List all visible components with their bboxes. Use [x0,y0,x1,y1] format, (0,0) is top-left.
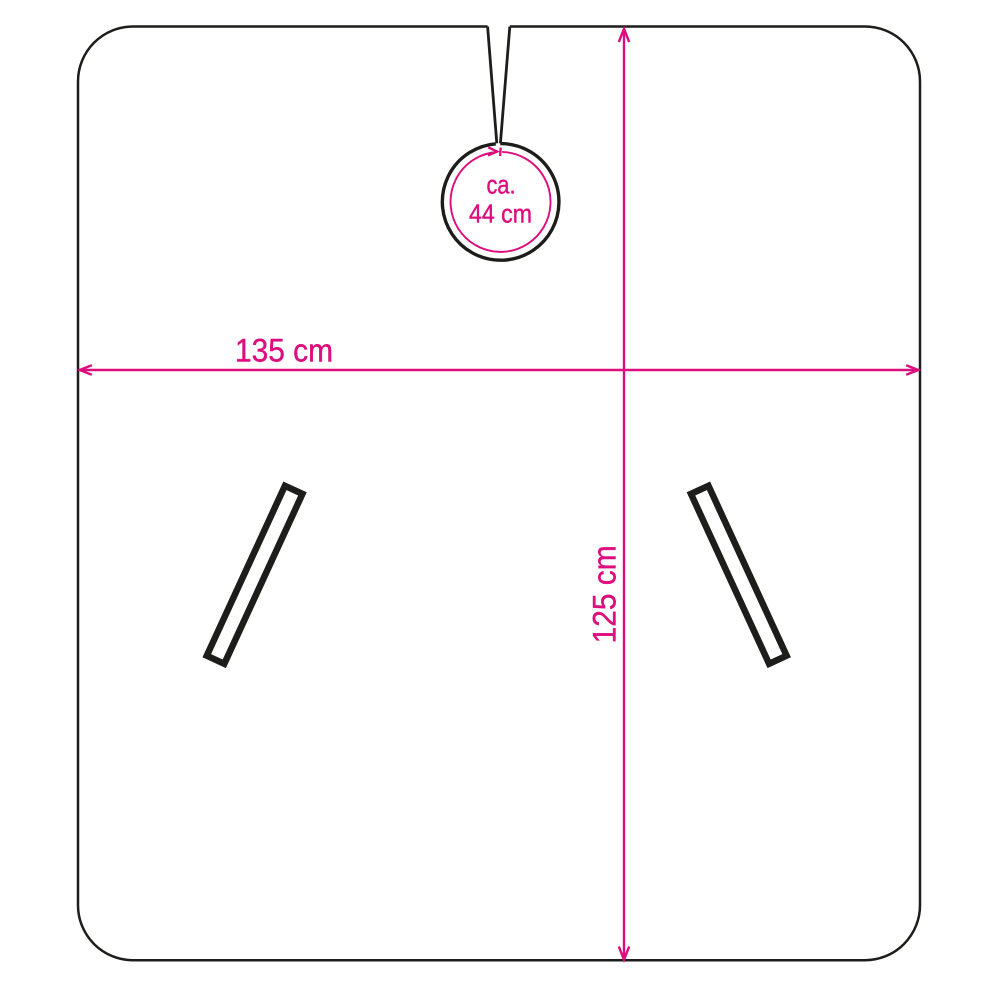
svg-text:ca.: ca. [487,170,516,200]
svg-text:125 cm: 125 cm [587,545,623,643]
svg-text:135 cm: 135 cm [235,333,333,369]
svg-text:44 cm: 44 cm [469,199,532,229]
